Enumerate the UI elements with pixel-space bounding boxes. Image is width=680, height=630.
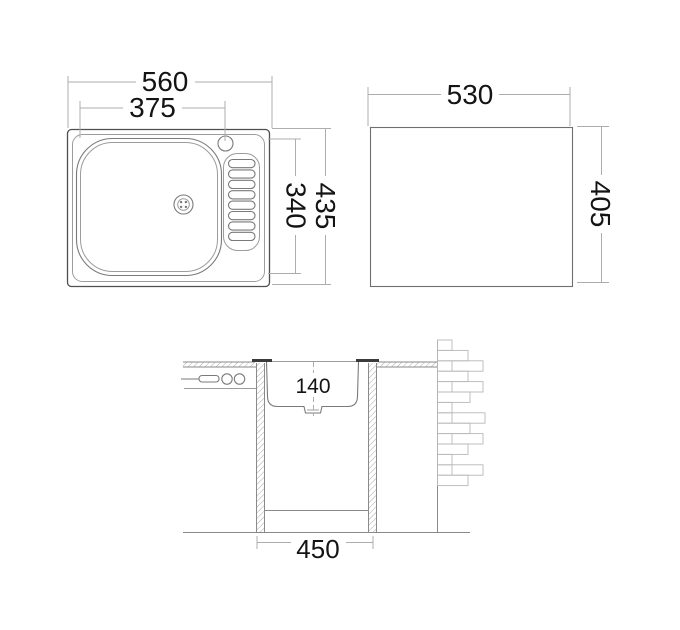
technical-drawing-page: 560 375 340 435 530 405: [0, 0, 680, 630]
drainboard-groove: [229, 191, 256, 199]
drain-icon: [174, 195, 193, 214]
dimension-bowl-depth: 340: [268, 139, 312, 274]
brick: [438, 434, 484, 444]
tap-icon: [181, 374, 256, 389]
brick: [438, 423, 471, 433]
sink-top-view: 560 375 340 435: [68, 66, 342, 287]
brick: [438, 413, 486, 423]
countertop-left: [183, 362, 256, 367]
drainboard-icon: [224, 154, 260, 251]
brick: [438, 444, 469, 454]
dimension-cutout-width: 530: [368, 79, 570, 126]
brick: [438, 371, 469, 381]
brick-wall-icon: [438, 340, 486, 533]
dimension-bowl-width: 375: [80, 92, 225, 141]
overall-depth-label: 435: [310, 183, 341, 230]
bowl-outer-rim: [77, 139, 222, 276]
brick: [438, 465, 484, 475]
brick: [438, 475, 469, 485]
dimension-cutout-height: 405: [577, 127, 616, 283]
cutout-rect: [371, 128, 573, 287]
drainboard-groove: [229, 232, 256, 240]
drainboard-groove: [229, 212, 256, 220]
cutout-view: 530 405: [368, 79, 616, 287]
base-width-label: 450: [296, 534, 339, 564]
bowl-depth-label: 340: [281, 182, 312, 229]
cabinet-wall-left: [256, 363, 265, 533]
sink-deck-outline: [73, 135, 265, 282]
brick: [438, 382, 484, 392]
drainboard-groove: [229, 170, 256, 178]
drainboard-groove: [229, 201, 256, 209]
cutout-height-label: 405: [585, 181, 616, 228]
drawing-canvas: 560 375 340 435 530 405: [0, 0, 680, 630]
drainboard-groove: [229, 160, 256, 168]
bowl-width-label: 375: [129, 92, 176, 123]
cutout-width-label: 530: [447, 79, 494, 110]
drainboard-groove: [229, 222, 256, 230]
section-view: 140: [181, 340, 485, 564]
brick: [438, 350, 469, 360]
brick: [438, 392, 471, 402]
brick: [438, 402, 453, 412]
cabinet-wall-right: [368, 363, 377, 533]
countertop-right: [377, 362, 437, 367]
brick: [438, 340, 453, 350]
drainboard-groove: [229, 180, 256, 188]
bowl-inner-rim: [81, 143, 218, 272]
brick: [438, 454, 453, 464]
dimension-base-width: 450: [257, 534, 373, 564]
bowl-section-depth-label: 140: [295, 375, 330, 398]
brick: [438, 361, 484, 371]
